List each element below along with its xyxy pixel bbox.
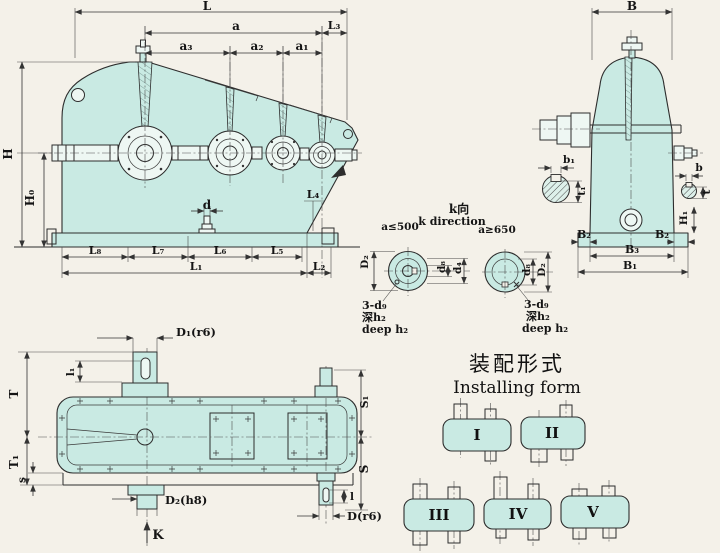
- label-a: a: [232, 19, 240, 33]
- top-view-body: [57, 397, 357, 473]
- end-breather: [622, 37, 642, 58]
- label-L5: L₅: [271, 244, 284, 257]
- label-Dr6: D(r6): [347, 509, 382, 523]
- label-cond-right: a≥650: [478, 224, 516, 236]
- bottom-small-shaft: [317, 473, 335, 505]
- label-d: d: [203, 198, 212, 212]
- label-b: b: [695, 162, 702, 174]
- label-L8: L₈: [89, 244, 102, 257]
- label-B: B: [627, 0, 637, 13]
- form-1-numeral: I: [473, 426, 480, 444]
- label-L3: L₃: [328, 19, 341, 32]
- end-input-shaft: [540, 113, 590, 147]
- label-t1: t₁: [576, 186, 588, 195]
- label-d8-left: d₈: [436, 261, 448, 273]
- label-L4: L₄: [307, 188, 320, 201]
- label-D2-left: D₂: [359, 255, 371, 269]
- label-H: H: [1, 148, 15, 159]
- label-d4-left: d₄: [452, 262, 464, 274]
- label-K: K: [152, 528, 164, 543]
- form-4: IV: [484, 471, 551, 546]
- installing-form-section: 装配形式 Installing form I II III IV: [404, 352, 629, 551]
- label-L2: L₂: [313, 260, 326, 273]
- label-t: t: [701, 189, 713, 194]
- top-view: D₁(r6) l₁ T T₁ s S₁ S D₂(h8) l D(r6) K: [7, 325, 382, 546]
- label-H1: H₁: [678, 211, 690, 226]
- label-L: L: [203, 0, 212, 13]
- end-view: B b₁ t₁ b t H₁ B₂ B₂ B₃ B₁: [532, 0, 713, 278]
- form-3-numeral: III: [428, 506, 449, 524]
- label-D1: D₁(r6): [176, 325, 216, 339]
- gear-reducer-dimension-drawing: L a L₃ a₃ a₂ a₁ H H₀ d L₄ L₈ L₇ L₆ L₅ L₁…: [0, 0, 720, 553]
- label-depth-cn-right: 深h₂: [526, 309, 550, 323]
- label-L7: L₇: [152, 244, 165, 257]
- label-L6: L₆: [214, 244, 227, 257]
- label-B1: B₁: [623, 259, 637, 272]
- label-D2h8: D₂(h8): [165, 493, 207, 507]
- label-H0: H₀: [23, 190, 37, 207]
- label-d8-right: d₈: [521, 264, 533, 276]
- k-direction-views: k向 k direction a≤500 D₂ d₈ d₄ 3-d₉ 深h₂ d…: [359, 201, 568, 336]
- label-b1: b₁: [563, 154, 575, 166]
- label-depth-en-left: deep h₂: [362, 323, 408, 336]
- label-T1: T₁: [7, 455, 21, 469]
- front-hole: [620, 209, 642, 231]
- form-2: II: [521, 400, 585, 468]
- label-B2-left: B₂: [577, 228, 591, 241]
- hand-hole: [72, 89, 85, 102]
- k-view-title-en: k direction: [418, 215, 485, 228]
- k-view-title-cn: k向: [449, 201, 469, 216]
- drawing-canvas: L a L₃ a₃ a₂ a₁ H H₀ d L₄ L₈ L₇ L₆ L₅ L₁…: [0, 0, 720, 553]
- label-L1: L₁: [190, 260, 203, 273]
- form-3: III: [404, 478, 474, 551]
- label-a3: a₃: [179, 39, 192, 53]
- installing-form-title-en: Installing form: [453, 378, 581, 398]
- label-a2: a₂: [250, 39, 263, 53]
- k-view-left: a≤500 D₂ d₈ d₄ 3-d₉ 深h₂ deep h₂: [359, 221, 470, 336]
- top-small-shaft: [315, 368, 337, 397]
- form-5: V: [561, 480, 629, 545]
- label-a1: a₁: [295, 39, 308, 53]
- label-T: T: [7, 389, 21, 398]
- form-4-numeral: IV: [509, 505, 528, 523]
- label-depth-cn-left: 深h₂: [362, 310, 386, 324]
- top-input-shaft: [122, 352, 168, 397]
- label-B3: B₃: [625, 243, 639, 256]
- label-S: S: [357, 465, 371, 474]
- label-s: s: [16, 477, 28, 483]
- label-depth-en-right: deep h₂: [522, 322, 568, 335]
- form-1: I: [443, 398, 511, 467]
- label-D2-right: D₂: [536, 263, 548, 277]
- side-view: L a L₃ a₃ a₂ a₁ H H₀ d L₄ L₈ L₇ L₆ L₅ L₁…: [1, 0, 362, 278]
- k-view-right: a≥650 d₈ D₂ 3-d₉ 深h₂ deep h₂: [478, 224, 568, 335]
- form-5-numeral: V: [586, 503, 599, 521]
- label-B2-right: B₂: [655, 228, 669, 241]
- key-section-b1: [538, 166, 582, 203]
- label-S1: S₁: [358, 395, 371, 408]
- bottom-output-shaft: [128, 485, 164, 509]
- installing-form-title-cn: 装配形式: [469, 352, 565, 376]
- breather-cap: [136, 40, 150, 62]
- label-cond-left: a≤500: [381, 221, 419, 233]
- form-2-numeral: II: [545, 424, 559, 442]
- label-l: l: [350, 491, 354, 503]
- label-l1: l₁: [65, 368, 77, 377]
